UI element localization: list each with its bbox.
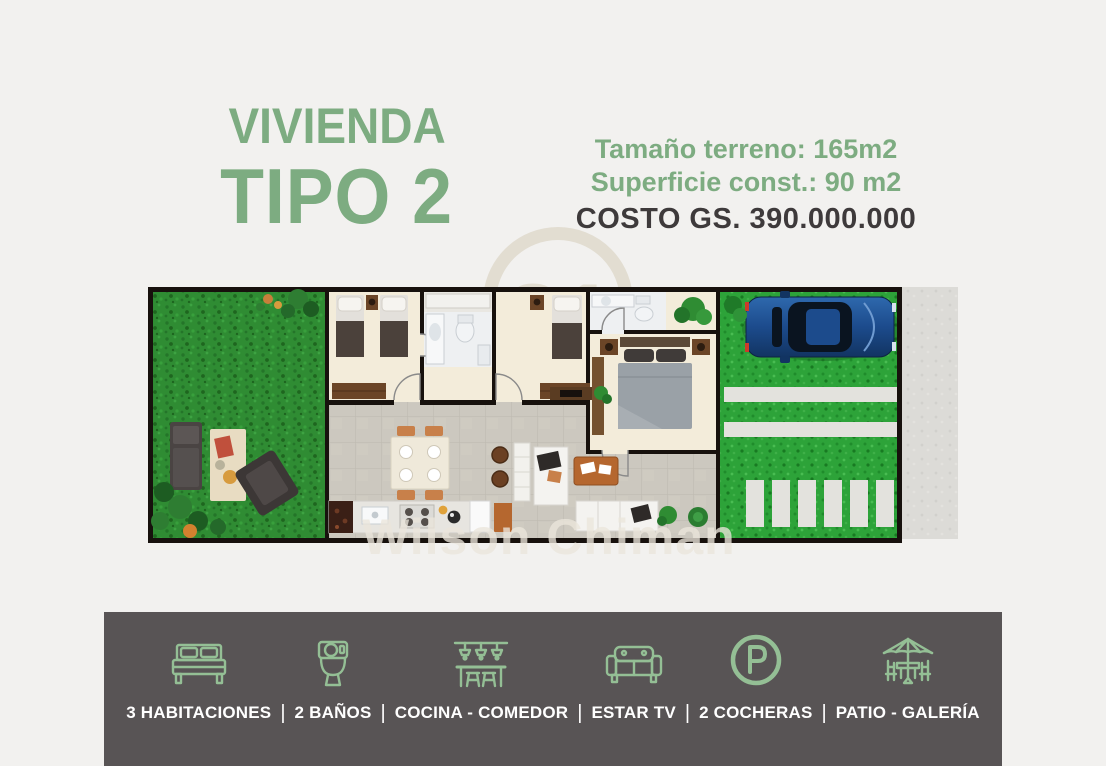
- label-separator: |: [372, 702, 395, 724]
- feature-label: COCINA - COMEDOR: [395, 702, 569, 724]
- feature-cocina-comedor: COCINA - COMEDOR: [395, 634, 569, 724]
- features-bar: 3 HABITACIONES | 2 BAÑOS |: [104, 612, 1002, 766]
- cost-text: COSTO GS. 390.000.000: [570, 201, 922, 238]
- label-separator: |: [676, 702, 699, 724]
- feature-cocheras: 2 COCHERAS: [699, 634, 812, 724]
- label-separator: |: [271, 702, 294, 724]
- property-info: Tamaño terreno: 165m2 Superficie const.:…: [570, 133, 922, 238]
- feature-estar-tv: ESTAR TV: [591, 634, 675, 724]
- floor-plan-illustration: [148, 287, 958, 543]
- feature-label: 3 HABITACIONES: [126, 702, 271, 724]
- patio-icon: [878, 634, 938, 688]
- page-title: VIVIENDA TIPO 2: [167, 98, 507, 236]
- feature-label: 2 COCHERAS: [699, 702, 812, 724]
- feature-habitaciones: 3 HABITACIONES: [126, 634, 271, 724]
- kitchen-dining-icon: [452, 634, 510, 688]
- toilet-icon: [311, 634, 355, 688]
- title-line-1: VIVIENDA: [228, 98, 445, 154]
- feature-label: ESTAR TV: [591, 702, 675, 724]
- feature-label: 2 BAÑOS: [295, 702, 372, 724]
- built-area-text: Superficie const.: 90 m2: [570, 166, 922, 199]
- feature-banos: 2 BAÑOS: [295, 634, 372, 724]
- flyer-page: VIVIENDA TIPO 2 Tamaño terreno: 165m2 Su…: [0, 0, 1106, 766]
- feature-label: PATIO - GALERÍA: [836, 702, 980, 724]
- title-line-2: TIPO 2: [221, 156, 454, 236]
- label-separator: |: [813, 702, 836, 724]
- sofa-icon: [603, 634, 665, 688]
- bed-icon: [167, 634, 231, 688]
- parking-icon: [728, 634, 784, 688]
- feature-patio-galeria: PATIO - GALERÍA: [836, 634, 980, 724]
- features-row: 3 HABITACIONES | 2 BAÑOS |: [104, 612, 1002, 724]
- land-size-text: Tamaño terreno: 165m2: [570, 133, 922, 166]
- label-separator: |: [568, 702, 591, 724]
